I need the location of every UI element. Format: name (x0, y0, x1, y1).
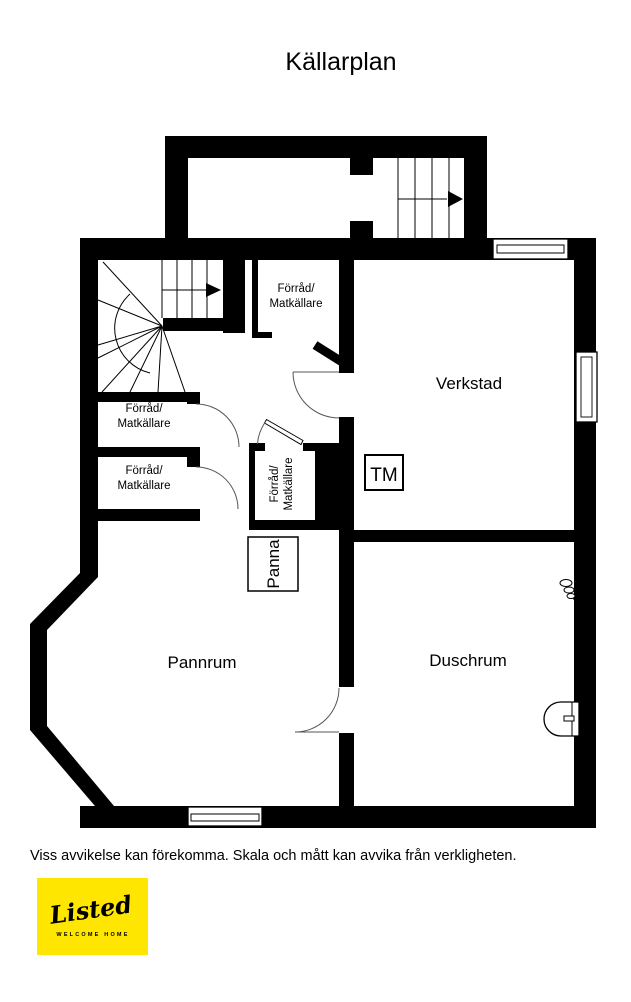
wall (339, 417, 354, 443)
stair-wall (163, 318, 223, 331)
wall (354, 530, 575, 542)
floor-plan-canvas: Källarplan (0, 0, 631, 1002)
stair-tread (102, 326, 162, 392)
stair-arrow-icon (448, 191, 463, 207)
door-arc (295, 688, 339, 732)
stair-arrow-icon (206, 283, 221, 297)
room-label: Matkällare (117, 418, 170, 430)
wall (339, 260, 354, 373)
room-label: Matkällare (283, 457, 295, 510)
stair-tread (158, 326, 162, 392)
shower-icon (560, 580, 576, 603)
room-labels: Förråd/ Matkällare Förråd/ Matkällare Fö… (117, 283, 506, 672)
room-label-pannrum: Pannrum (168, 653, 237, 672)
brand-logo: Listed WELCOME HOME (37, 878, 148, 955)
disclaimer-text: Viss avvikelse kan förekomma. Skala och … (30, 848, 517, 864)
door-leaf (265, 420, 304, 445)
wall (339, 530, 354, 687)
stair-tread (98, 300, 162, 326)
door-arc (293, 372, 339, 418)
window-bottom (188, 807, 262, 826)
wall (303, 443, 315, 451)
toilet-icon (544, 702, 579, 736)
wall (98, 509, 200, 521)
wall (252, 332, 272, 338)
wall (98, 392, 200, 402)
room-label: Förråd/ (277, 283, 315, 295)
door-arc (258, 422, 266, 445)
wall (165, 136, 188, 240)
fixtures: TM Panna (248, 455, 579, 736)
room-label: Förråd/ (125, 465, 163, 477)
window-right (576, 352, 597, 422)
stair-wall (223, 258, 245, 333)
wall (249, 443, 265, 451)
window-top (493, 239, 568, 259)
door-leaf-black (315, 345, 342, 362)
wall (80, 806, 596, 828)
wall (252, 260, 258, 332)
wall (165, 136, 487, 158)
wall (464, 136, 487, 240)
winder-stairs (98, 258, 245, 392)
wall (187, 392, 200, 404)
room-label: Matkällare (117, 480, 170, 492)
floor-plan-page: Källarplan (0, 0, 631, 1002)
bay-wall (30, 573, 114, 806)
wall (315, 443, 354, 530)
wall (339, 733, 354, 828)
room-label-verkstad: Verkstad (436, 374, 502, 393)
stair-tread (162, 326, 185, 392)
room-label-duschrum: Duschrum (429, 651, 506, 670)
room-label: Förråd/ (269, 465, 281, 503)
wall (350, 221, 373, 238)
wall (350, 158, 373, 175)
door-arc (196, 404, 239, 447)
wall (80, 238, 98, 573)
wall (98, 447, 200, 457)
logo-tagline-text: WELCOME HOME (56, 932, 129, 938)
room-label: Förråd/ (125, 403, 163, 415)
wall (249, 520, 339, 530)
washing-machine-label: TM (370, 465, 397, 486)
stair-tread (103, 262, 162, 326)
wall (187, 457, 200, 467)
wall (249, 445, 255, 520)
door-arc (196, 467, 238, 509)
page-title: Källarplan (285, 48, 396, 76)
room-label: Matkällare (269, 298, 322, 310)
wall (574, 238, 596, 828)
entrance-stairs (398, 158, 463, 238)
boiler-label: Panna (264, 539, 283, 589)
stair-tread (130, 326, 162, 392)
